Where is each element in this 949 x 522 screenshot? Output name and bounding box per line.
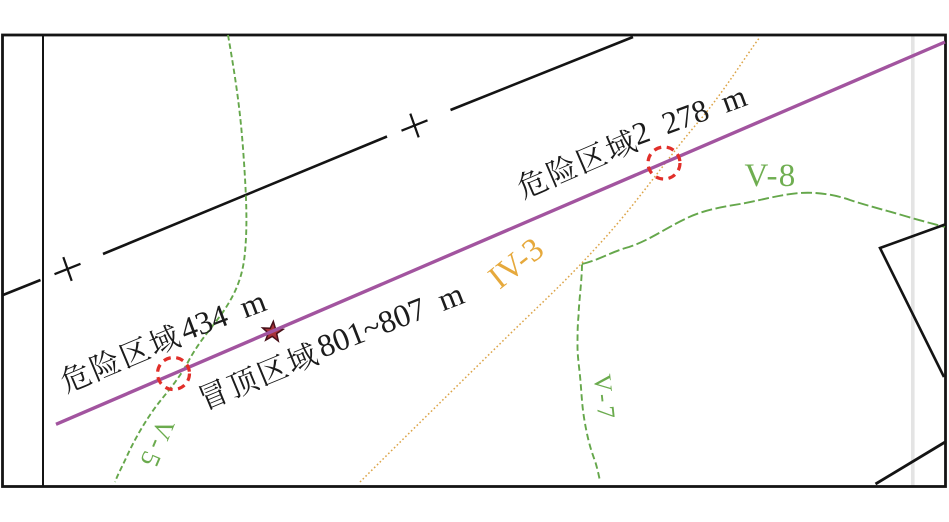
svg-text:V-7: V-7 xyxy=(588,373,620,424)
svg-text:V-8: V-8 xyxy=(745,158,797,194)
